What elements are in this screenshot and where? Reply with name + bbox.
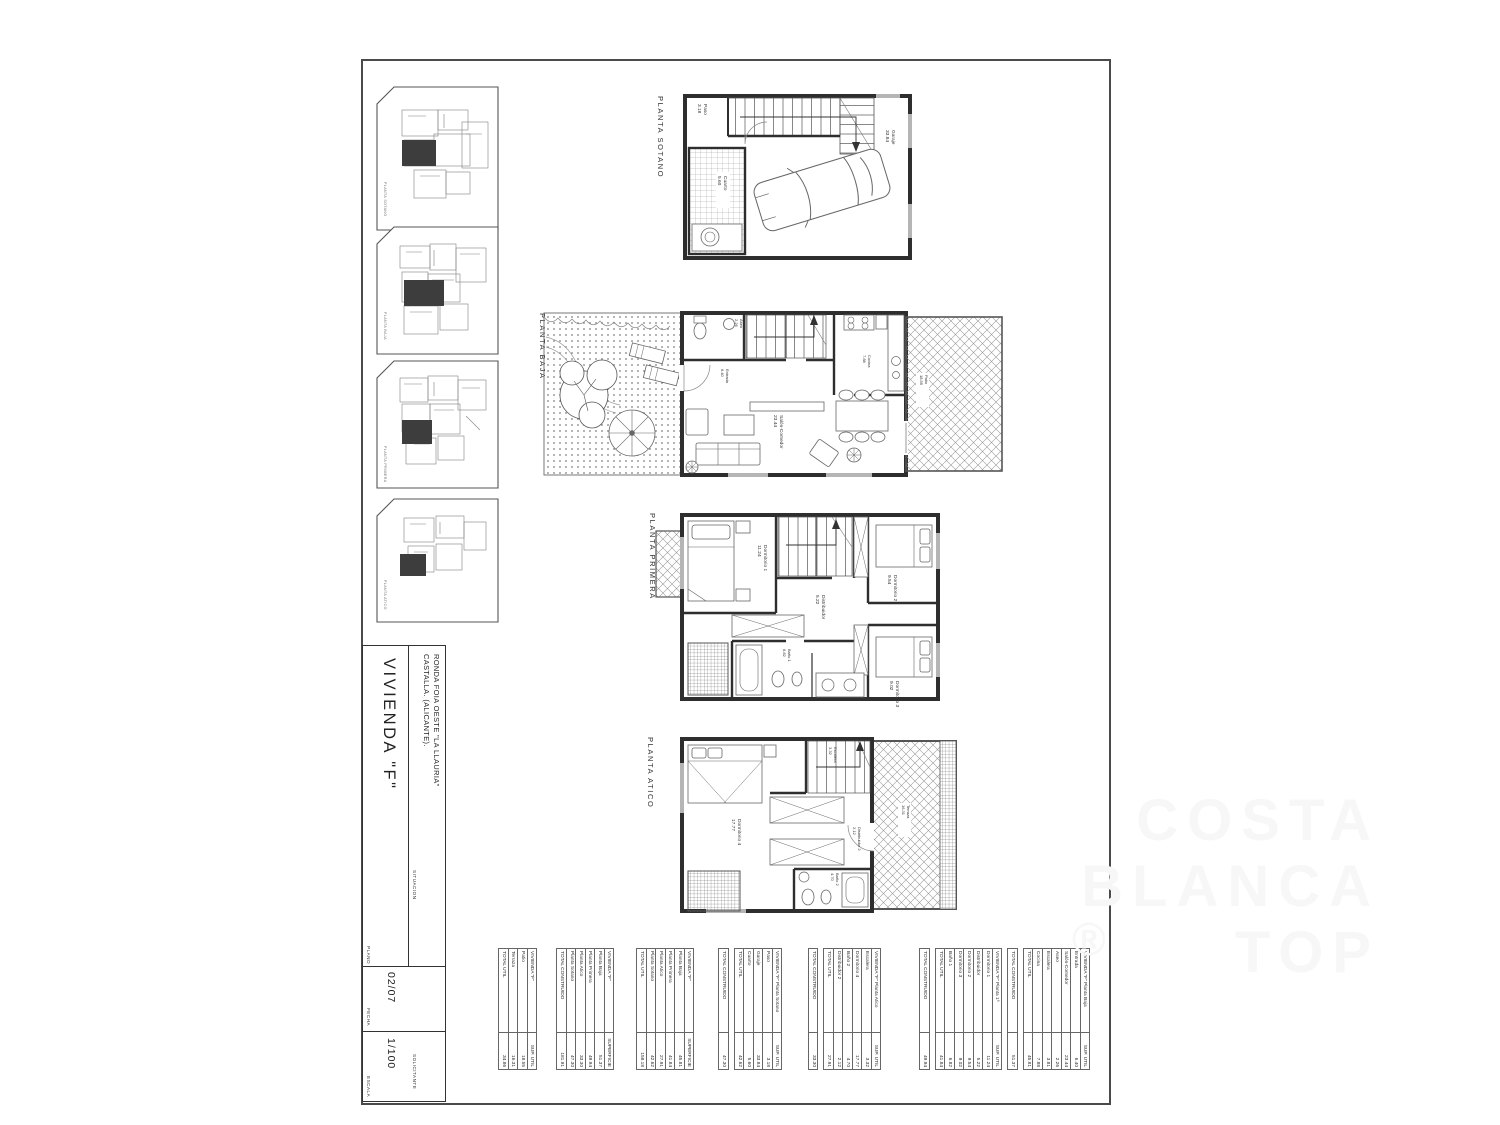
table-row: Dormitorio 29.54 [964, 949, 973, 1070]
room-name: Dormitorio 1 [983, 949, 992, 1033]
bidet [821, 890, 831, 904]
room-area: 3.32 [862, 1033, 871, 1070]
room-area: 6.82 [945, 1033, 954, 1070]
room-name: Cocina [1033, 949, 1042, 1033]
terraza: Terraza 16.31 [872, 741, 956, 909]
total-row: TOTAL UTIL158.18 [637, 949, 646, 1070]
surface-table-group-total-construido: VIVIENDA "F"SUPERFICIEPlanta Baja51.37Pl… [550, 948, 614, 1070]
total-constructed-table: TOTAL CONSTRUIDO49.94 [919, 948, 929, 1070]
total-value: 42.62 [734, 1033, 743, 1070]
table-row: Dormitorio 39.02 [954, 949, 963, 1070]
room-area: 2.26 [1052, 1033, 1061, 1070]
room-area: 6.40 [1071, 1033, 1080, 1070]
table-row: Terraza16.31 [508, 949, 517, 1070]
table-row: Planta Baja51.37 [595, 949, 604, 1070]
total-row: TOTAL UTIL34.86 [499, 949, 508, 1070]
situacion-value: RONDA FOIA OESTE "LA LLAURIA" CASTALLA. … [422, 654, 441, 787]
unit-f-highlight [402, 420, 432, 444]
total-constructed-row: TOTAL CONSTRUIDO51.37 [1008, 949, 1017, 1070]
wardrobe [770, 839, 844, 865]
window [876, 94, 900, 98]
table-row: Distribuidor5.22 [973, 949, 982, 1070]
table-header-row: VIVIENDA "F"SUPERFICIE [684, 949, 693, 1070]
room-area: 4.70 [843, 1033, 852, 1070]
pillow [920, 529, 930, 544]
surface-table-group-exterior: VIVIENDA "F"SUP. UTILPatio18.55Terraza16… [497, 948, 537, 1070]
table-header-row: VIVIENDA "F" Planta SotanoSUP. UTIL [772, 949, 781, 1070]
floor-plan-sotano: PLANTA SOTANO Paso 3.18 Cuarto 5.60 [640, 86, 932, 278]
room-area: 3.18 [763, 1033, 772, 1070]
table-row: Planta Sotano42.62 [646, 949, 655, 1070]
surface-table: VIVIENDA "F"SUPERFICIEPlanta Baja45.81Pl… [636, 948, 694, 1070]
table-row: Cocina7.88 [1033, 949, 1042, 1070]
table-row: Planta Atico33.30 [576, 949, 585, 1070]
toilet [772, 671, 784, 687]
blueprint-page: COSTA BLANCA TOP ® PLANTA SOTANO PLANTA … [0, 0, 1500, 1125]
plan-label-atico: PLANTA ATICO [646, 737, 655, 808]
fridge [876, 315, 887, 329]
table-row: Garaje33.84 [753, 949, 762, 1070]
table-row: Patio18.55 [518, 949, 527, 1070]
patio: Patio 18.55 [904, 317, 1002, 471]
situacion-label: SITUACION [412, 870, 417, 900]
total-constructed-table: TOTAL CONSTRUIDO47.30 [718, 948, 728, 1070]
staircase [746, 315, 826, 358]
wardrobe [854, 517, 868, 577]
floor-plan-atico: PLANTA ATICO Terraza 16.31 Escalera 3.32 [636, 727, 978, 925]
total-row: TOTAL UTIL41.84 [935, 949, 944, 1070]
room-name: Planta Baja [595, 949, 604, 1033]
floor-plan-primera: PLANTA PRIMERA Dormitorio 1 11.24 [636, 503, 954, 713]
table-row: Baño 16.82 [945, 949, 954, 1070]
tv-unit [750, 402, 824, 411]
vivienda-title: VIVIENDA "F" [379, 658, 398, 791]
pillow [692, 525, 730, 539]
table-title: VIVIENDA "F" Planta Atico [871, 949, 880, 1033]
nightstand [764, 745, 776, 757]
sink [799, 872, 809, 882]
value-column-header: SUP. UTIL [527, 1033, 536, 1070]
value-column-header: SUPERFICIE [684, 1033, 693, 1070]
table-title: VIVIENDA "F" [684, 949, 693, 1033]
room-name: Baño 2 [843, 949, 852, 1033]
window [936, 533, 940, 569]
pillow [920, 641, 930, 655]
value-column-header: SUP. UTIL [871, 1033, 880, 1070]
total-label: TOTAL UTIL [734, 949, 743, 1033]
key-plan-label: PLANTA BAJA [383, 312, 387, 340]
key-plan-label: PLANTA SOTANO [383, 182, 387, 217]
key-plan-thumbnail-atico: PLANTA ATICO [374, 496, 502, 626]
table-title: VIVIENDA "F" [604, 949, 613, 1033]
table-row: Dormitorio 111.24 [983, 949, 992, 1070]
room-name: Escalera [1042, 949, 1051, 1033]
room-area: 7.88 [1033, 1033, 1042, 1070]
fecha-value: 02/07 [385, 972, 397, 1003]
surface-table-group-planta-sotano: VIVIENDA "F" Planta SotanoSUP. UTILPaso3… [712, 948, 782, 1070]
room-name: Paso [763, 949, 772, 1033]
room-area: 18.55 [518, 1033, 527, 1070]
escala-label: ESCALA [366, 1076, 371, 1097]
room-area: 5.60 [744, 1033, 753, 1070]
toilet [802, 889, 814, 905]
table-row: Escalera3.32 [862, 949, 871, 1070]
surface-table: VIVIENDA "F"SUP. UTILPatio18.55Terraza16… [498, 948, 537, 1070]
unit-f-highlight [400, 554, 426, 576]
key-plan-label: PLANTA ATICO [383, 580, 387, 610]
value-column-header: SUP. UTIL [1080, 1033, 1089, 1070]
total-label: TOTAL UTIL [824, 949, 833, 1033]
room-name: Planta Atico [656, 949, 665, 1033]
total-constructed-table: TOTAL CONSTRUIDO33.30 [808, 948, 818, 1070]
room-area: 45.81 [675, 1033, 684, 1070]
table-row: Planta Baja45.81 [675, 949, 684, 1070]
surface-table-group-planta-primera: VIVIENDA "F" Planta 1ªSUP. UTILDormitori… [908, 948, 1002, 1070]
storage-room: Cuarto 5.60 [689, 148, 745, 254]
table-row: Dormitorio 417.77 [852, 949, 861, 1070]
room-name: Garaje [753, 949, 762, 1033]
value-column-header: SUPERFICIE [604, 1033, 613, 1070]
room-area: 17.77 [852, 1033, 861, 1070]
total-constructed-value: 49.94 [920, 1033, 929, 1070]
room-label-patio: Patio 18.55 [919, 375, 929, 386]
staircase [778, 517, 852, 576]
room-area: 9.54 [964, 1033, 973, 1070]
plano-label: PLANO [366, 946, 371, 964]
room-area: 41.84 [665, 1033, 674, 1070]
room-area: 9.02 [954, 1033, 963, 1070]
total-label: TOTAL UTIL [1023, 949, 1032, 1033]
room-name: Terraza [508, 949, 517, 1033]
room-area: 11.24 [983, 1033, 992, 1070]
sofa [696, 443, 760, 465]
table-row: Distribuidor 22.12 [833, 949, 842, 1070]
wardrobe [770, 797, 844, 823]
room-name: Dormitorio 2 [964, 949, 973, 1033]
nightstand [736, 521, 750, 533]
total-constructed-value: 51.37 [1008, 1033, 1017, 1070]
room-name: Distribuidor [973, 949, 982, 1033]
table-header-row: VIVIENDA "F"SUPERFICIE [604, 949, 613, 1070]
room-area: 5.22 [973, 1033, 982, 1070]
total-label: TOTAL UTIL [637, 949, 646, 1033]
table-row: Paso3.18 [763, 949, 772, 1070]
rear-balcony [688, 643, 728, 695]
room-name: Escalera [862, 949, 871, 1033]
window [728, 473, 768, 477]
balcony [656, 531, 682, 597]
room-area: 51.37 [595, 1033, 604, 1070]
pillow [692, 748, 706, 758]
table-title: VIVIENDA "F" [527, 949, 536, 1033]
table-row: Planta Primera41.84 [665, 949, 674, 1070]
total-constructed-label: TOTAL CONSTRUIDO [920, 949, 929, 1033]
unit-f-highlight [402, 140, 436, 166]
window [908, 204, 912, 238]
surface-table: VIVIENDA "F" Planta SotanoSUP. UTILPaso3… [734, 948, 782, 1070]
room-area: 3.81 [1042, 1033, 1051, 1070]
room-name: Planta Primera [665, 949, 674, 1033]
total-row: TOTAL UTIL45.81 [1023, 949, 1032, 1070]
plant [686, 461, 698, 473]
window [936, 643, 940, 677]
sink [724, 319, 735, 330]
room-name: Cuarto [744, 949, 753, 1033]
plant [847, 448, 861, 462]
total-constructed-value: 33.30 [808, 1033, 817, 1070]
total-value: 27.91 [824, 1033, 833, 1070]
total-constructed-label: TOTAL CONSTRUIDO [719, 949, 728, 1033]
unit-f-highlight [404, 280, 444, 306]
key-plan-thumbnail-baja: PLANTA BAJA [374, 224, 502, 358]
key-plan-label: PLANTA PRIMERA [383, 446, 387, 483]
room-area: 16.31 [508, 1033, 517, 1070]
table-title: VIVIENDA "F" Planta Sotano [772, 949, 781, 1033]
room-area: 23.44 [1061, 1033, 1070, 1070]
table-row: Escalera3.81 [1042, 949, 1051, 1070]
escala-value: 1/100 [385, 1038, 397, 1069]
armchair [686, 409, 708, 435]
terrace-door-opening [870, 823, 874, 851]
parasol [609, 410, 655, 456]
plan-label-sotano: PLANTA SOTANO [656, 96, 665, 178]
pillow [708, 748, 722, 758]
rear-balcony [688, 871, 740, 911]
surface-table-group-planta-atico: VIVIENDA "F" Planta AticoSUP. UTILEscale… [799, 948, 881, 1070]
room-name: Patio [518, 949, 527, 1033]
total-constructed-table: TOTAL CONSTRUIDO51.37 [1007, 948, 1017, 1070]
room-area: 42.62 [646, 1033, 655, 1070]
room-area: 27.91 [656, 1033, 665, 1070]
fecha-label: FECHA [366, 1008, 371, 1026]
room-area: 49.94 [585, 1033, 594, 1070]
key-plan-thumbnail-sotano: PLANTA SOTANO [374, 84, 502, 234]
coffee-table [724, 415, 754, 435]
room-name: Planta Atico [576, 949, 585, 1033]
room-area: 33.84 [753, 1033, 762, 1070]
room-name: Distribuidor 2 [833, 949, 842, 1033]
room-name: Planta Sotano [646, 949, 655, 1033]
total-value: 41.84 [935, 1033, 944, 1070]
pillow [920, 658, 930, 672]
room-name: Planta Sotano [566, 949, 575, 1033]
wardrobe [732, 615, 804, 637]
total-constructed-row: TOTAL CONSTRUIDO47.30 [719, 949, 728, 1070]
total-constructed-label: TOTAL CONSTRUIDO [808, 949, 817, 1033]
table-header-row: VIVIENDA "F" Planta AticoSUP. UTIL [871, 949, 880, 1070]
room-name: Dormitorio 4 [852, 949, 861, 1033]
watermark-line: COSTA [1055, 788, 1380, 854]
vanity [816, 673, 864, 697]
bidet [792, 672, 802, 686]
total-label: TOTAL UTIL [935, 949, 944, 1033]
staircase: Escalera 3.32 [808, 741, 870, 793]
title-block: RONDA FOIA OESTE "LA LLAURIA" CASTALLA. … [362, 645, 446, 1102]
total-constructed-value: 47.30 [719, 1033, 728, 1070]
total-constructed-label: TOTAL CONSTRUIDO [1008, 949, 1017, 1033]
room-area: 2.12 [833, 1033, 842, 1070]
counter [888, 315, 904, 391]
total-row: TOTAL UTIL27.91 [824, 949, 833, 1070]
room-name: Planta Primera [585, 949, 594, 1033]
room-name: Dormitorio 3 [954, 949, 963, 1033]
dining-table [836, 401, 888, 431]
dorm3-bed [876, 637, 932, 677]
table-row: Planta Primera49.94 [585, 949, 594, 1070]
room-area: 33.30 [576, 1033, 585, 1070]
total-label: TOTAL CONSTRUIDO [557, 949, 566, 1033]
window [680, 537, 684, 589]
total-value: 158.18 [637, 1033, 646, 1070]
total-constructed-row: TOTAL CONSTRUIDO33.30 [808, 949, 817, 1070]
total-row: TOTAL UTIL42.62 [734, 949, 743, 1070]
table-header-row: VIVIENDA "F"SUP. UTIL [527, 949, 536, 1070]
table-row: Planta Atico27.91 [656, 949, 665, 1070]
surface-table: VIVIENDA "F" Planta AticoSUP. UTILEscale… [823, 948, 881, 1070]
table-row: Planta Sotano47.30 [566, 949, 575, 1070]
pillow [920, 547, 930, 562]
surface-table: VIVIENDA "F"SUPERFICIEPlanta Baja51.37Pl… [556, 948, 614, 1070]
garden: F [544, 313, 686, 475]
total-value: 181.91 [557, 1033, 566, 1070]
total-value: 34.86 [499, 1033, 508, 1070]
total-value: 45.81 [1023, 1033, 1032, 1070]
wardrobe [854, 625, 868, 675]
room-name: Planta Baja [675, 949, 684, 1033]
total-label: TOTAL UTIL [499, 949, 508, 1033]
solicitante-label: SOLICITANTE [412, 1054, 417, 1089]
room-name: Baño 1 [945, 949, 954, 1033]
window [908, 114, 912, 148]
total-row: TOTAL CONSTRUIDO181.91 [557, 949, 566, 1070]
value-column-header: SUP. UTIL [772, 1033, 781, 1070]
window [826, 473, 872, 477]
room-area: 47.30 [566, 1033, 575, 1070]
key-plan-thumbnail-primera: PLANTA PRIMERA [374, 358, 502, 492]
registered-trademark-icon: ® [1072, 912, 1106, 966]
table-row: Baño 24.70 [843, 949, 852, 1070]
watermark-line: BLANCA [1055, 854, 1380, 920]
toilet [694, 323, 706, 339]
total-constructed-row: TOTAL CONSTRUIDO49.94 [920, 949, 929, 1070]
window [680, 763, 684, 813]
nightstand [736, 589, 750, 601]
surface-table-group-total-util: VIVIENDA "F"SUPERFICIEPlanta Baja45.81Pl… [630, 948, 694, 1070]
dorm2-bed [876, 525, 932, 567]
surface-table: VIVIENDA "F" Planta 1ªSUP. UTILDormitori… [935, 948, 1002, 1070]
table-row: Cuarto5.60 [744, 949, 753, 1070]
floor-plan-baja: PLANTA BAJA F [528, 303, 1012, 495]
